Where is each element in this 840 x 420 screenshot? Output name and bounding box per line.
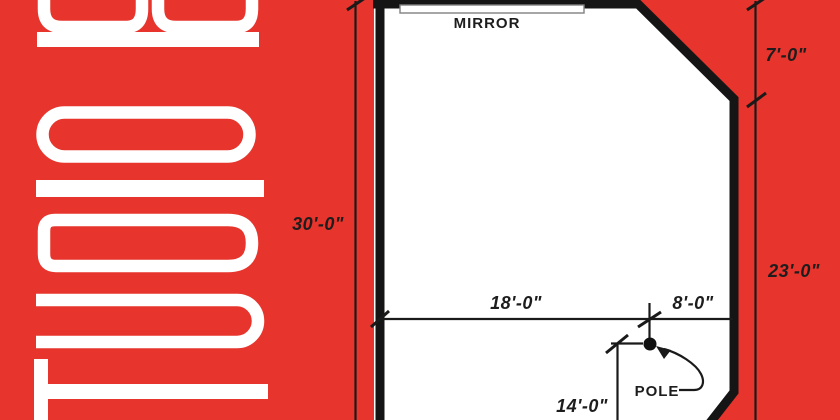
letter-t-stem [40, 384, 268, 399]
letter-b-bowl-2 [158, 0, 252, 27]
mirror-rect [400, 5, 584, 13]
dim-label-7ft: 7'-0" [765, 45, 806, 65]
pole-dot [644, 338, 657, 351]
dim-label-18ft: 18'-0" [490, 293, 542, 313]
letter-u [36, 300, 258, 342]
letter-b-stem [37, 32, 259, 47]
dim-label-30ft: 30'-0" [292, 214, 344, 234]
dim-label-8ft: 8'-0" [672, 293, 713, 313]
letter-b-bowl-1 [44, 0, 142, 27]
letter-i [36, 180, 264, 197]
brand-letters-group [34, 0, 268, 420]
pole-label: POLE [635, 383, 680, 400]
dim-label-23ft: 23'-0" [767, 261, 820, 281]
studio-b-floorplan-banner: STUDIO B [0, 0, 840, 420]
dim-label-14ft: 14'-0" [556, 396, 608, 416]
mirror-label: MIRROR [454, 15, 521, 32]
floorplan-graphic: MIRROR POLE 30'-0" 7'-0" 23'-0" 18'-0" 8… [0, 0, 840, 420]
letter-o [43, 113, 250, 157]
letter-d [44, 220, 252, 266]
